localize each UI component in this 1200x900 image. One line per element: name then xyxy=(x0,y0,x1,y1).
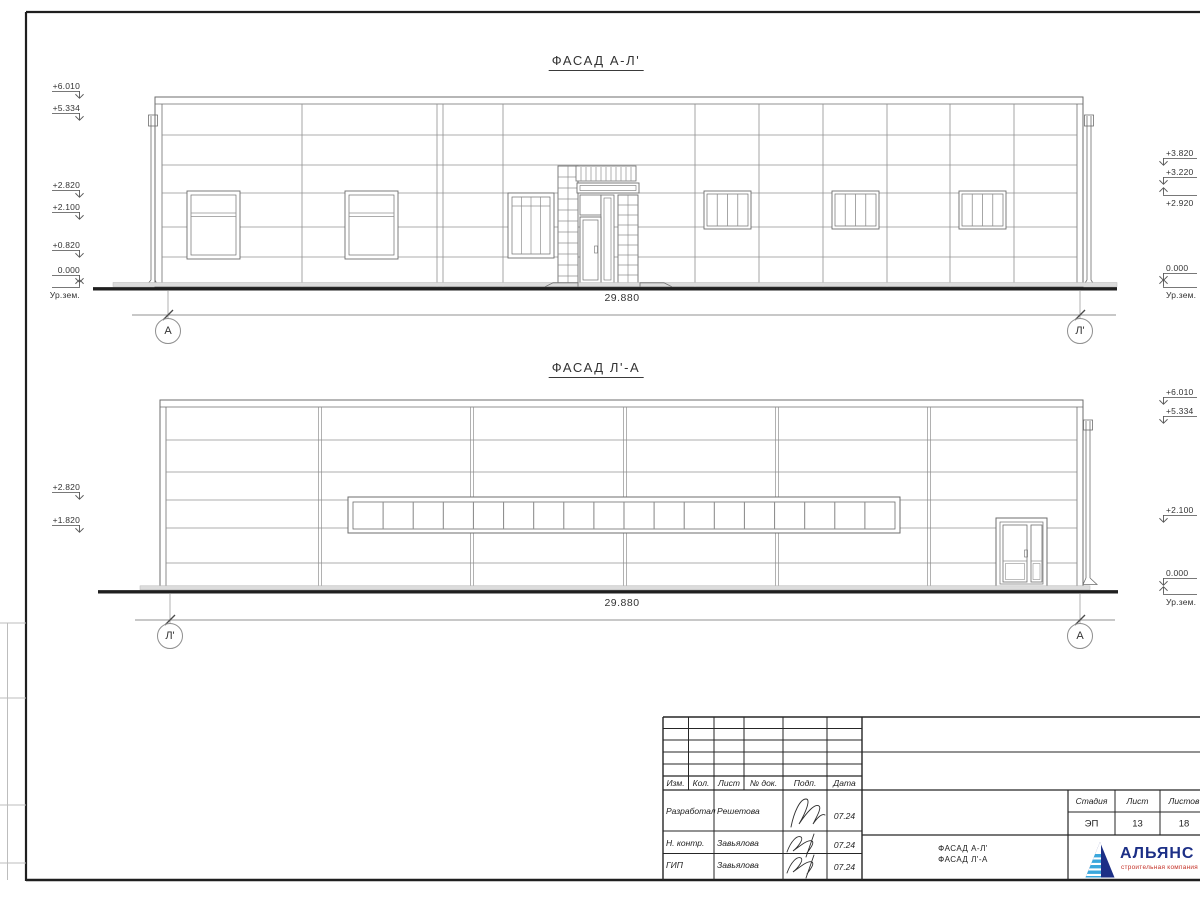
elevation-value: +0.820 xyxy=(53,240,80,250)
facade1-linework xyxy=(93,97,1117,320)
facade1-window-2 xyxy=(345,191,398,259)
elevation-arrow-icon xyxy=(75,525,84,536)
elevation-mark: +6.010 xyxy=(52,91,80,92)
elevation-arrow-icon xyxy=(75,492,84,503)
facade2-door xyxy=(996,518,1047,587)
tb-row1-date: 07.24 xyxy=(834,811,855,821)
elevation-arrow-icon xyxy=(75,190,84,201)
facade1-window-1 xyxy=(187,191,240,259)
axis-circle: А xyxy=(1067,623,1093,649)
tb-row3-role: ГИП xyxy=(666,860,683,870)
elevation-arrow-icon xyxy=(1159,276,1168,287)
tb-sheet-label: Лист xyxy=(1127,796,1149,806)
elevation-arrow-icon xyxy=(1159,583,1168,594)
elevation-value: +3.220 xyxy=(1166,167,1193,177)
elevation-value: 0.000 xyxy=(1166,263,1188,273)
logo-tagline: строительная компания xyxy=(1121,864,1198,871)
elevation-arrow-icon xyxy=(75,212,84,223)
facade2-apron xyxy=(140,586,1090,590)
elevation-value: +2.100 xyxy=(1166,505,1193,515)
drawing-sheet: ФАСАД А-Л' ФАСАД Л'-А 29.880 29.880 Изм.… xyxy=(0,0,1200,900)
elevation-value: +2.920 xyxy=(1166,198,1193,208)
elevation-mark: +3.820 xyxy=(1163,158,1197,159)
elevation-arrow-icon xyxy=(75,91,84,102)
elevation-value: Ур.зем. xyxy=(1166,597,1196,607)
facade2-title: ФАСАД Л'-А xyxy=(549,360,644,378)
elevation-mark: +1.820 xyxy=(52,525,80,526)
elevation-value: 0.000 xyxy=(58,265,80,275)
tb-row1-name: Решетова xyxy=(717,806,760,816)
elevation-mark: Ур.зем. xyxy=(1163,594,1197,595)
elevation-mark: +5.334 xyxy=(1163,416,1197,417)
elevation-mark: 0.000 xyxy=(1163,578,1197,579)
facade2-linework xyxy=(98,400,1118,625)
elevation-value: Ур.зем. xyxy=(1166,290,1196,300)
elevation-mark: +2.820 xyxy=(52,190,80,191)
tb-row2-name: Завьялова xyxy=(717,838,759,848)
elevation-value: +3.820 xyxy=(1166,148,1193,158)
tb-col-ndok: № док. xyxy=(750,778,777,788)
facade1-downpipe-right xyxy=(1083,115,1095,286)
elevation-mark: +6.010 xyxy=(1163,397,1197,398)
elevation-mark: +3.220 xyxy=(1163,177,1197,178)
facade1-entrance xyxy=(558,166,639,285)
elevation-arrow-icon xyxy=(1159,416,1168,427)
elevation-value: Ур.зем. xyxy=(50,290,80,300)
elevation-mark: +2.820 xyxy=(52,492,80,493)
tb-row2-role: Н. контр. xyxy=(666,838,704,848)
signatures xyxy=(787,799,825,878)
elevation-mark: +2.920 xyxy=(1163,195,1197,196)
facade2-ribbon-window xyxy=(348,497,900,533)
logo-name: АЛЬЯНС xyxy=(1120,845,1194,863)
tb-sheet-value: 13 xyxy=(1132,819,1143,830)
signature-1 xyxy=(791,799,825,827)
logo-triangle-icon xyxy=(1084,842,1115,879)
elevation-mark: +5.334 xyxy=(52,113,80,114)
elevation-value: +5.334 xyxy=(1166,406,1193,416)
tb-stage-value: ЭП xyxy=(1085,819,1099,830)
axis-circle: Л' xyxy=(157,623,183,649)
tb-stage-label: Стадия xyxy=(1076,796,1108,806)
elevation-mark: +0.820 xyxy=(52,250,80,251)
elevation-arrow-icon xyxy=(75,113,84,124)
elevation-value: +5.334 xyxy=(53,103,80,113)
signature-3 xyxy=(787,855,814,878)
tb-col-data: Дата xyxy=(833,778,855,788)
facade1-small-windows xyxy=(704,191,1006,229)
tb-row3-name: Завьялова xyxy=(717,860,759,870)
facade1-apron xyxy=(113,283,1117,287)
elevation-value: +2.820 xyxy=(53,482,80,492)
tb-sheets-value: 18 xyxy=(1179,819,1190,830)
elevation-arrow-icon xyxy=(1159,515,1168,526)
facade2-dimension-label: 29.880 xyxy=(604,597,639,609)
elevation-arrow-icon xyxy=(75,276,84,287)
tb-row2-date: 07.24 xyxy=(834,840,855,850)
elevation-value: +6.010 xyxy=(1166,387,1193,397)
elevation-value: +2.100 xyxy=(53,202,80,212)
linework-canvas xyxy=(0,0,1200,900)
elevation-arrow-icon xyxy=(1159,184,1168,195)
tb-doc-title-line2: ФАСАД Л'-А xyxy=(938,855,988,864)
tb-row3-date: 07.24 xyxy=(834,862,855,872)
elevation-value: 0.000 xyxy=(1166,568,1188,578)
tb-col-podp: Подп. xyxy=(794,778,817,788)
elevation-value: +6.010 xyxy=(53,81,80,91)
tb-row1-role: Разработал xyxy=(666,806,716,816)
facade2-downpipe xyxy=(1083,420,1097,585)
tb-doc-title-line1: ФАСАД А-Л' xyxy=(938,844,988,853)
tb-col-izm: Изм. xyxy=(666,778,684,788)
elevation-arrow-icon xyxy=(75,250,84,261)
tb-col-list: Лист xyxy=(718,778,740,788)
elevation-mark: +2.100 xyxy=(1163,515,1197,516)
elevation-mark: Ур.зем. xyxy=(52,287,80,288)
elevation-mark: +2.100 xyxy=(52,212,80,213)
facade1-storefront-window xyxy=(508,193,554,258)
axis-circle: Л' xyxy=(1067,318,1093,344)
facade1-dimension-label: 29.880 xyxy=(604,292,639,304)
elevation-value: +1.820 xyxy=(53,515,80,525)
tb-sheets-label: Листов xyxy=(1169,796,1200,806)
tb-col-kol: Кол. xyxy=(693,778,710,788)
facade1-title: ФАСАД А-Л' xyxy=(549,53,644,71)
axis-circle: А xyxy=(155,318,181,344)
elevation-mark: 0.000 xyxy=(1163,273,1197,274)
elevation-value: +2.820 xyxy=(53,180,80,190)
elevation-mark: Ур.зем. xyxy=(1163,287,1197,288)
